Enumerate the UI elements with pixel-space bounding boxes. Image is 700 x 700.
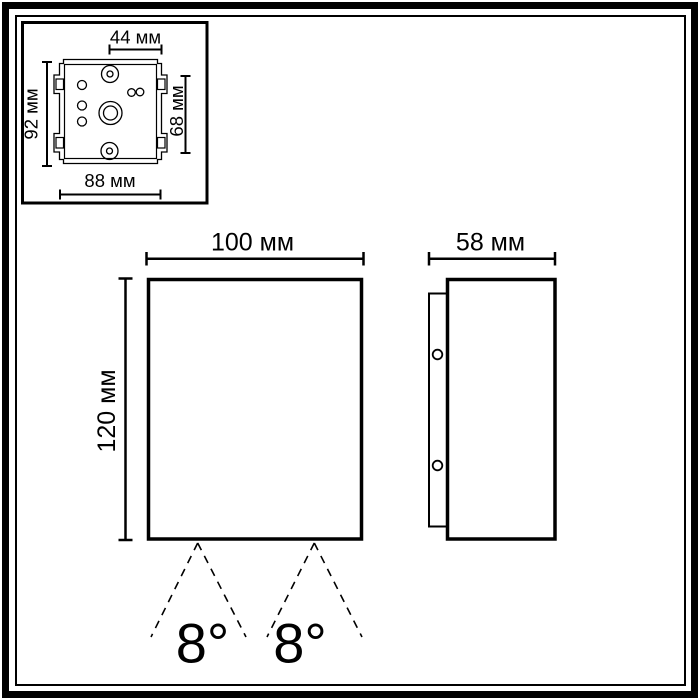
dimension-label: 100 мм [211, 229, 294, 257]
dimension-label: 68 мм [166, 85, 187, 136]
front-view [149, 280, 362, 540]
dimension-92mm: 92 мм [21, 61, 53, 167]
side-view-wall-bracket [429, 294, 447, 527]
beam-angle-label: 8° [176, 612, 230, 675]
dimension-44mm: 44 мм [110, 27, 162, 55]
dimension-label: 92 мм [21, 88, 42, 139]
side-view-body [448, 280, 556, 540]
dimension-68mm: 68 мм [166, 76, 191, 154]
dimension-88mm: 88 мм [60, 170, 162, 200]
dimension-label: 44 мм [110, 27, 161, 48]
dimension-58mm: 58 мм [429, 229, 556, 266]
dimension-drawing-canvas: 44 мм 92 мм 68 мм 88 мм 100 мм [0, 0, 700, 700]
screw-hole-top [433, 350, 443, 360]
dimension-label: 58 мм [456, 229, 525, 257]
plate-inset-panel: 44 мм 92 мм 68 мм 88 мм [21, 23, 208, 204]
dimension-label: 120 мм [93, 369, 121, 452]
dimension-line [42, 61, 52, 167]
clip-notch [56, 79, 64, 90]
beam-angle-label: 8° [273, 612, 327, 675]
beam-angle-right: 8° [267, 543, 362, 675]
screw-hole-bottom [433, 461, 443, 471]
dimension-label: 88 мм [84, 170, 135, 191]
dimension-100mm: 100 мм [146, 229, 364, 266]
clip-notch [56, 138, 64, 149]
clip-notch [158, 79, 166, 90]
dimension-120mm: 120 мм [93, 278, 133, 541]
beam-angle-left: 8° [151, 543, 246, 675]
technical-drawing: 44 мм 92 мм 68 мм 88 мм 100 мм [0, 0, 700, 700]
front-view-body [149, 280, 362, 540]
side-view [429, 280, 555, 540]
dimension-line [60, 190, 162, 200]
clip-notch [158, 138, 166, 149]
mounting-plate-top-view [54, 60, 167, 164]
